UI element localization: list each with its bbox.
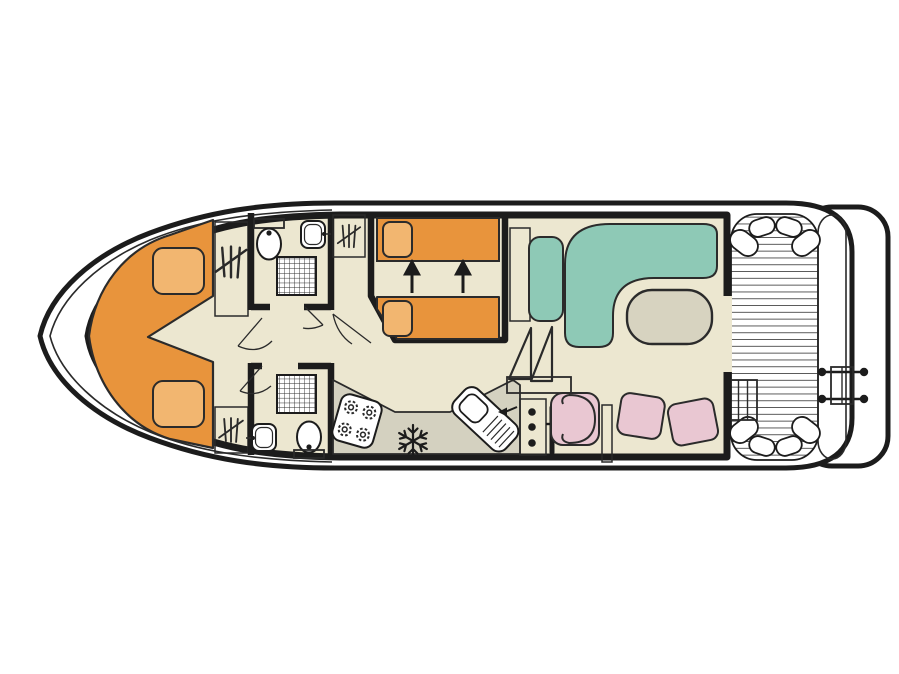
bow-pillow-port: [153, 248, 204, 294]
berth-pillow: [383, 301, 412, 336]
stool-cushion: [666, 397, 719, 447]
console-dial: [528, 423, 536, 431]
berth-pillow: [383, 222, 412, 257]
salon-side-seat: [529, 237, 563, 321]
stool-cushion: [616, 392, 666, 440]
toilet: [257, 229, 281, 260]
shower-grid: [277, 257, 316, 295]
salon-aft-door-gap: [722, 296, 732, 372]
helm-seat: [551, 393, 599, 445]
bow-pillow-starboard: [153, 381, 204, 427]
salon-table: [627, 290, 712, 344]
boat-floor-plan-canvas: [0, 0, 899, 674]
deck-plan-svg: [0, 0, 899, 674]
shower-grid: [277, 375, 316, 413]
toilet: [297, 422, 321, 453]
console-dial: [528, 408, 536, 416]
console-dial: [528, 439, 536, 447]
